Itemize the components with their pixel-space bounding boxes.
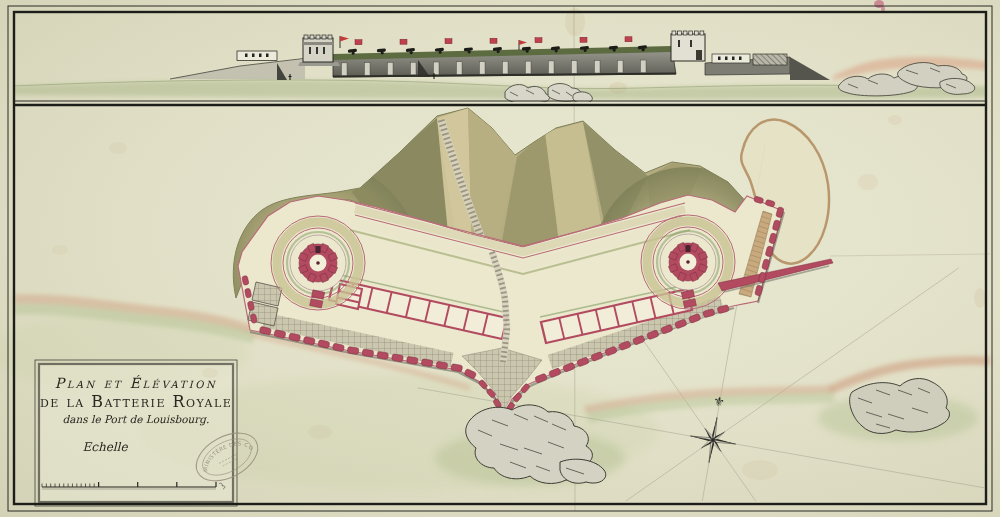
flag <box>340 36 349 42</box>
elevation-glacis-slope <box>170 59 305 79</box>
elevation-battery-wall <box>333 37 676 77</box>
elevation-right-wall <box>705 54 830 80</box>
map-title-line3: dans le Port de Louisbourg. <box>40 413 232 425</box>
elevation-guardhouse <box>237 51 277 61</box>
elevation-right-tower <box>671 31 705 61</box>
elevation-coast-right <box>833 57 988 96</box>
manuscript-sheet: ⚜ MINISTÈRE DES COLONIES Plan et Élévati… <box>0 0 1000 517</box>
map-title-line2: de la Batterie Royale <box>40 392 232 411</box>
title-cartouche: Plan et Élévation de la Batterie Royale … <box>40 366 232 498</box>
elevation-view <box>14 31 988 104</box>
chimney-row <box>355 37 632 45</box>
fleur-de-lis-icon: ⚜ <box>712 393 727 410</box>
map-title-line1: Plan et Élévation <box>40 375 232 391</box>
flag <box>519 40 527 45</box>
scale-label: Echelle <box>40 440 170 454</box>
